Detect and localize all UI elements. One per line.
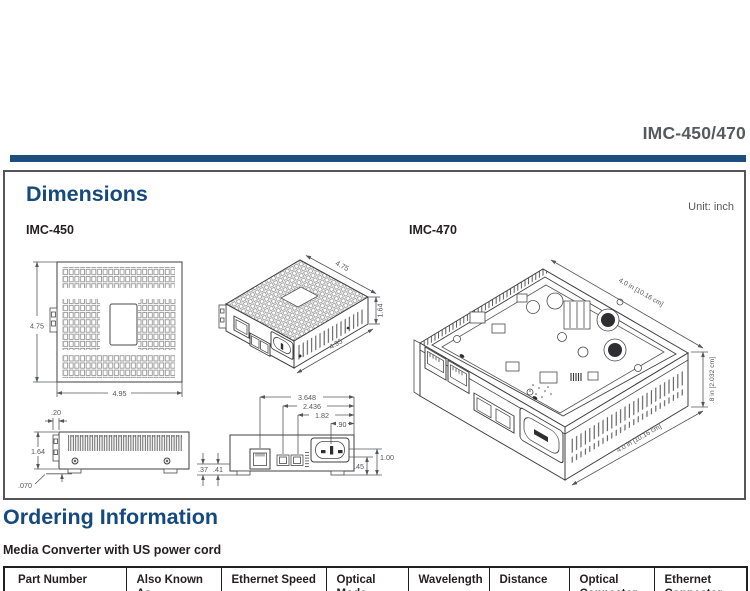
dimension-label: 1.00 <box>380 453 394 462</box>
dimension-label: 4.95 <box>113 389 127 398</box>
col-optical-connector: Optical Connector <box>569 567 654 591</box>
imc450-label: IMC-450 <box>26 223 74 237</box>
dimension-label: .90 <box>337 420 347 429</box>
imc450-top-view-drawing: 4.75 4.95 <box>12 254 207 406</box>
col-ethernet-speed: Ethernet Speed <box>221 567 326 591</box>
col-also-known-as: Also Known As <box>126 567 221 591</box>
dimensions-heading: Dimensions <box>26 182 148 207</box>
ordering-table: Part Number Also Known As Ethernet Speed… <box>3 566 748 591</box>
product-title: IMC-450/470 <box>643 123 746 144</box>
dimension-label: 4.75 <box>334 259 351 274</box>
dimensions-panel: Dimensions Unit: inch IMC-450 IMC-470 <box>3 170 746 500</box>
dimension-label: .41 <box>213 465 223 474</box>
col-part-number: Part Number <box>4 567 126 591</box>
dimension-label: 1.64 <box>376 304 385 318</box>
imc470-isometric-drawing: 4.0 in [10.16 cm] .8 in [2.032 cm] 4.0 i… <box>412 244 748 498</box>
table-header-row: Part Number Also Known As Ethernet Speed… <box>4 567 747 591</box>
dimension-label: .8 in [2.032 cm] <box>709 357 716 404</box>
dimension-label: .45 <box>354 462 364 471</box>
capacitor <box>527 301 540 314</box>
col-distance: Distance <box>489 567 569 591</box>
imc450-rear-view-drawing: 3.648 2.436 1.82 .90 .37 .41 .4 <box>194 387 412 501</box>
ordering-subtitle: Media Converter with US power cord <box>3 543 221 557</box>
dimension-label: 4.75 <box>30 322 44 331</box>
ordering-heading: Ordering Information <box>3 505 218 530</box>
dimension-label: .070 <box>18 481 32 490</box>
imc470-label: IMC-470 <box>409 223 457 237</box>
dimension-label: 3.648 <box>298 393 316 402</box>
imc450-side-view-drawing: .20 1.64 .070 <box>12 404 210 500</box>
col-wavelength: Wavelength <box>408 567 489 591</box>
datasheet-page: IMC-450/470 Dimensions Unit: inch IMC-45… <box>0 0 750 591</box>
capacitor <box>547 293 563 309</box>
dimension-label: 1.64 <box>31 447 45 456</box>
col-ethernet-connector: Ethernet Connector <box>654 567 747 591</box>
dimension-label: .20 <box>51 408 61 417</box>
dimension-label: 2.436 <box>303 402 321 411</box>
col-optical-mode: Optical Mode <box>326 567 408 591</box>
dimension-label: 1.82 <box>315 411 329 420</box>
imc450-isometric-drawing: 4.75 1.64 4.95 <box>205 252 387 394</box>
unit-label: Unit: inch <box>688 201 734 213</box>
header-rule <box>10 155 746 162</box>
dimension-label: .37 <box>198 465 208 474</box>
dimension-label: 4.0 in [10.16 cm] <box>617 277 664 308</box>
